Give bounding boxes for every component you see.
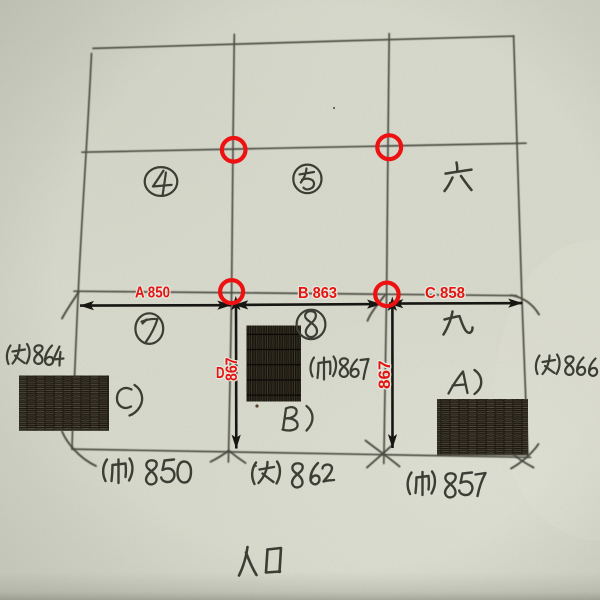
svg-text:867: 867 — [375, 361, 394, 390]
svg-text:C 858: C 858 — [425, 285, 465, 302]
svg-text:A 850: A 850 — [135, 285, 170, 302]
svg-text:B 863: B 863 — [298, 285, 337, 302]
svg-text:867: 867 — [222, 358, 241, 382]
